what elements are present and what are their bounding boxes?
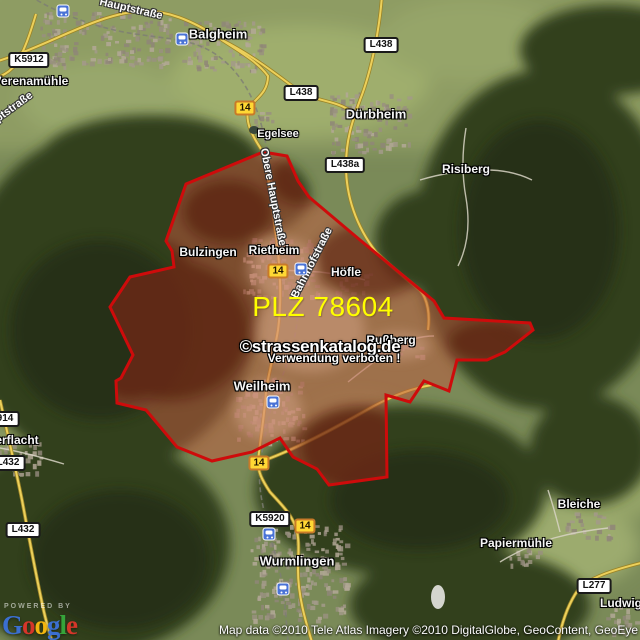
google-logo-letter: g (47, 610, 60, 640)
train-station-icon[interactable] (277, 583, 290, 596)
road-shield-l432: L432 (6, 522, 41, 538)
map-viewport[interactable]: HauptstraßeptstraßeObere HauptstraßeBahn… (0, 0, 640, 640)
train-station-icon[interactable] (57, 5, 70, 18)
road-shield-l438: L438 (364, 37, 399, 53)
google-logo-letter: G (2, 610, 22, 640)
watermark-line2: Verwendung verboten ! (268, 351, 401, 365)
copyright-attribution: Map data ©2010 Tele Atlas Imagery ©2010 … (219, 623, 638, 637)
train-station-icon[interactable] (267, 396, 280, 409)
road-shield-l277: L277 (577, 578, 612, 594)
road-shield-l438: L438 (284, 85, 319, 101)
google-logo-letter: o (35, 610, 48, 640)
google-logo-letter: o (22, 610, 35, 640)
route-badge-14: 14 (294, 519, 315, 534)
egelsee-pond (249, 126, 259, 134)
route-badge-14: 14 (248, 456, 269, 471)
plz-code-label: PLZ 78604 (252, 291, 394, 323)
powered-by-label: POWERED BY (4, 603, 72, 610)
pond (431, 585, 445, 609)
road-shield-914: 914 (0, 411, 19, 427)
road-shield-k5920: K5920 (249, 511, 290, 527)
road-shield-k5912: K5912 (8, 52, 49, 68)
route-badge-14: 14 (234, 101, 255, 116)
road-shield-l432: L432 (0, 455, 25, 471)
google-logo-letter: e (66, 610, 77, 640)
road-shield-l438a: L438a (325, 157, 365, 173)
train-station-icon[interactable] (263, 528, 276, 541)
train-station-icon[interactable] (176, 33, 189, 46)
route-badge-14: 14 (267, 264, 288, 279)
google-logo[interactable]: Google (2, 610, 77, 640)
train-station-icon[interactable] (295, 263, 308, 276)
